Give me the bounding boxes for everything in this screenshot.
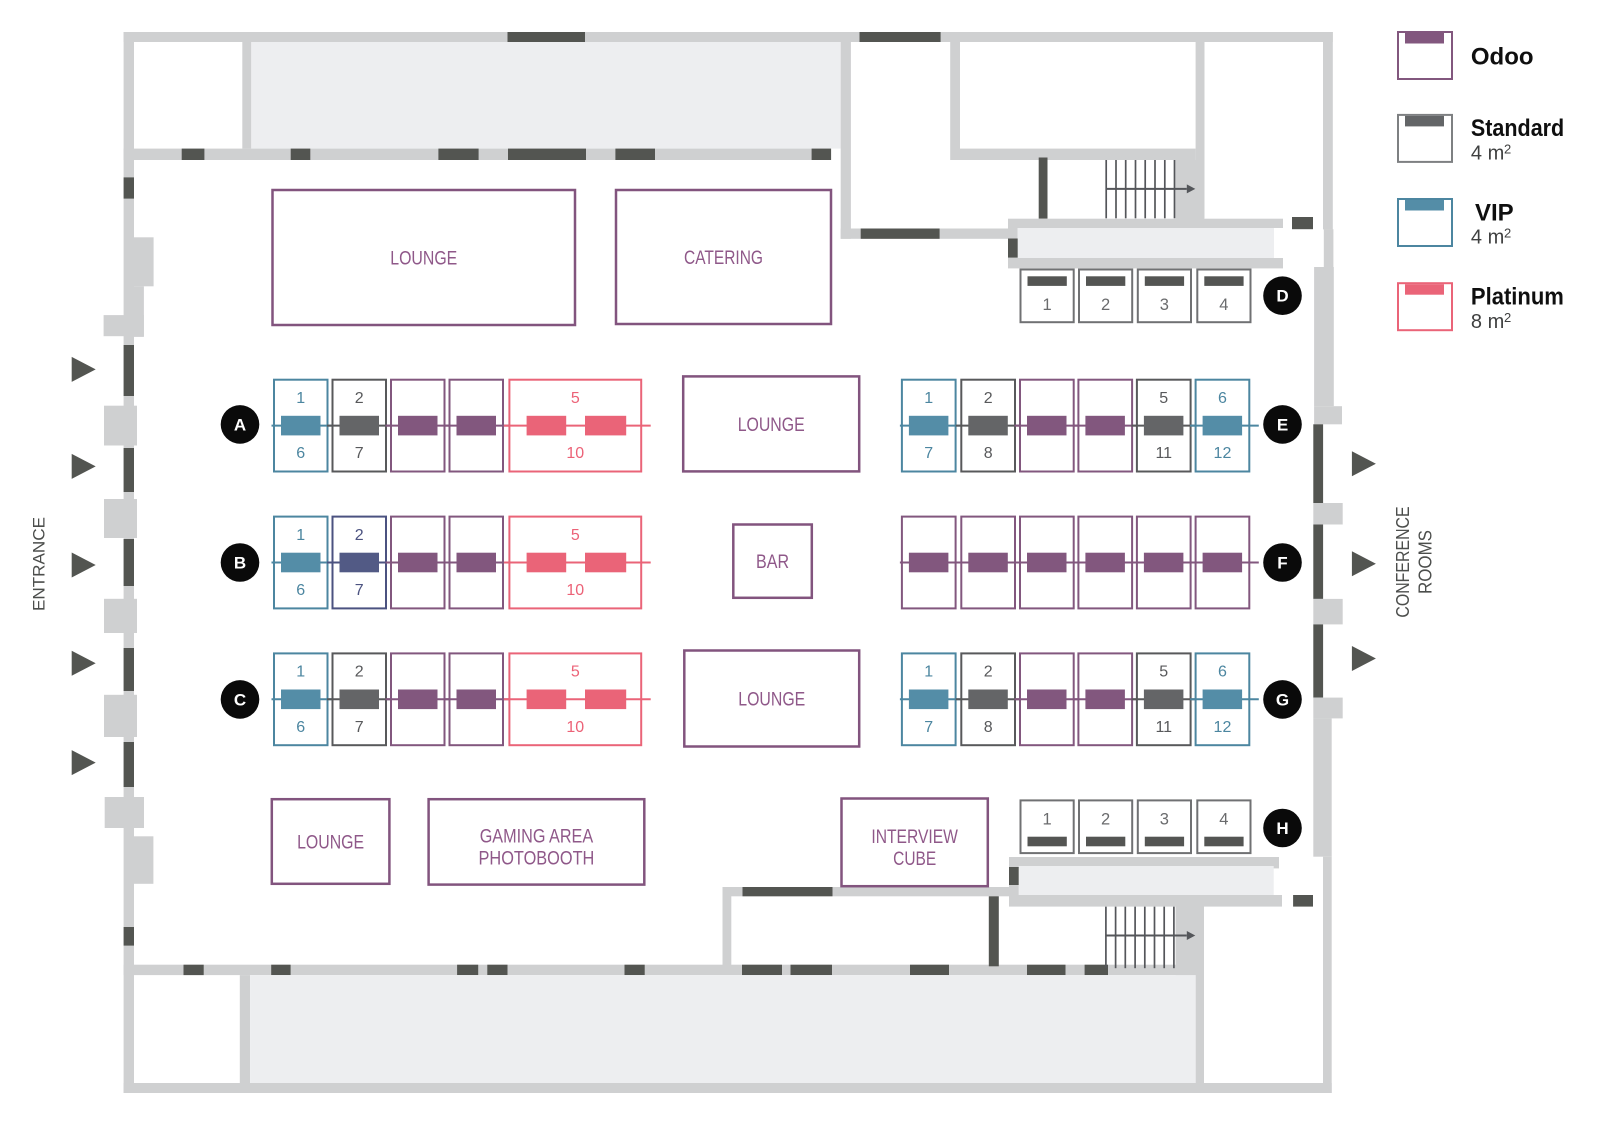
- svg-text:CATERING: CATERING: [684, 248, 763, 269]
- svg-text:VIP: VIP: [1475, 200, 1514, 227]
- svg-text:10: 10: [566, 582, 584, 599]
- svg-text:1: 1: [296, 664, 305, 681]
- svg-text:E: E: [1277, 415, 1288, 434]
- svg-text:1: 1: [1043, 296, 1052, 314]
- svg-text:7: 7: [355, 582, 364, 599]
- svg-text:7: 7: [924, 445, 933, 462]
- svg-text:2: 2: [1101, 296, 1110, 314]
- svg-text:B: B: [234, 554, 246, 573]
- svg-text:4 m: 4 m: [1471, 143, 1504, 165]
- svg-text:Platinum: Platinum: [1471, 284, 1564, 311]
- svg-text:2: 2: [1504, 310, 1511, 325]
- svg-text:4: 4: [1219, 810, 1228, 828]
- svg-text:ROOMS: ROOMS: [1416, 530, 1436, 594]
- svg-text:F: F: [1277, 554, 1287, 573]
- svg-text:2: 2: [355, 390, 364, 407]
- svg-text:C: C: [234, 690, 246, 709]
- svg-text:7: 7: [355, 719, 364, 736]
- svg-text:Standard: Standard: [1471, 115, 1564, 142]
- svg-text:2: 2: [355, 527, 364, 544]
- svg-text:5: 5: [571, 527, 580, 544]
- svg-text:CUBE: CUBE: [893, 849, 936, 870]
- svg-text:1: 1: [924, 664, 933, 681]
- svg-text:5: 5: [571, 390, 580, 407]
- svg-text:4: 4: [1219, 296, 1228, 314]
- svg-text:10: 10: [566, 719, 584, 736]
- svg-text:H: H: [1276, 819, 1288, 838]
- svg-text:LOUNGE: LOUNGE: [390, 248, 457, 269]
- svg-text:11: 11: [1155, 445, 1172, 462]
- svg-text:6: 6: [1218, 390, 1227, 407]
- svg-text:2: 2: [984, 390, 993, 407]
- svg-text:2: 2: [1504, 142, 1511, 157]
- svg-text:PHOTOBOOTH: PHOTOBOOTH: [479, 848, 595, 869]
- svg-text:1: 1: [296, 527, 305, 544]
- svg-text:2: 2: [984, 664, 993, 681]
- svg-text:2: 2: [1101, 810, 1110, 828]
- svg-text:1: 1: [296, 390, 305, 407]
- svg-text:10: 10: [566, 445, 584, 462]
- svg-text:D: D: [1276, 287, 1288, 306]
- svg-text:ENTRANCE: ENTRANCE: [31, 517, 49, 611]
- svg-text:12: 12: [1214, 445, 1232, 462]
- svg-text:8: 8: [984, 719, 993, 736]
- svg-text:LOUNGE: LOUNGE: [738, 415, 805, 436]
- svg-text:6: 6: [296, 582, 305, 599]
- svg-text:12: 12: [1214, 719, 1232, 736]
- svg-text:7: 7: [355, 445, 364, 462]
- svg-text:GAMING AREA: GAMING AREA: [480, 826, 594, 847]
- svg-text:2: 2: [355, 664, 364, 681]
- svg-text:8 m: 8 m: [1471, 311, 1504, 333]
- svg-text:8: 8: [984, 445, 993, 462]
- svg-text:CONFERENCE: CONFERENCE: [1393, 506, 1413, 617]
- svg-text:11: 11: [1155, 719, 1172, 736]
- svg-text:7: 7: [924, 719, 933, 736]
- svg-text:BAR: BAR: [756, 552, 789, 573]
- svg-text:Odoo: Odoo: [1471, 44, 1534, 71]
- svg-text:LOUNGE: LOUNGE: [297, 832, 364, 853]
- svg-text:5: 5: [1159, 664, 1168, 681]
- svg-text:1: 1: [924, 390, 933, 407]
- svg-text:3: 3: [1160, 810, 1169, 828]
- svg-text:5: 5: [571, 664, 580, 681]
- svg-text:INTERVIEW: INTERVIEW: [871, 827, 958, 848]
- svg-text:G: G: [1276, 690, 1289, 709]
- svg-text:A: A: [234, 415, 246, 434]
- svg-text:6: 6: [296, 445, 305, 462]
- svg-text:5: 5: [1159, 390, 1168, 407]
- svg-text:2: 2: [1504, 226, 1511, 241]
- svg-text:3: 3: [1160, 296, 1169, 314]
- svg-text:6: 6: [1218, 664, 1227, 681]
- svg-text:LOUNGE: LOUNGE: [738, 689, 805, 710]
- svg-text:6: 6: [296, 719, 305, 736]
- svg-text:4 m: 4 m: [1471, 227, 1504, 249]
- svg-text:1: 1: [1043, 810, 1052, 828]
